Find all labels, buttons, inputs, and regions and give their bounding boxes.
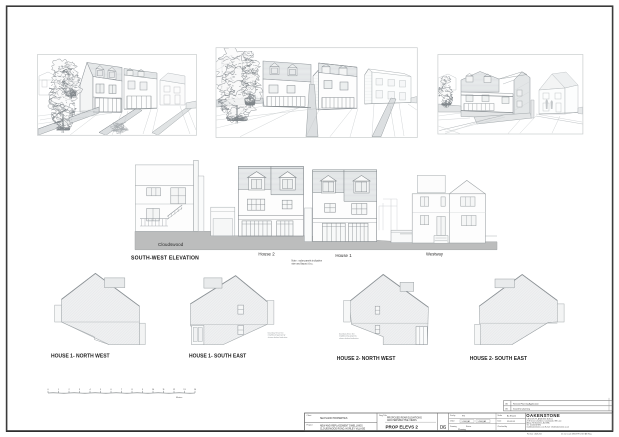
svg-text:Chkd: Chkd [450,421,454,423]
svg-text:HOUSE 2- SOUTH EAST: HOUSE 2- SOUTH EAST [470,356,527,362]
svg-text:Format : A1/1234: Format : A1/1234 [527,433,542,436]
svg-text:OAKENSTONE: OAKENSTONE [526,413,560,418]
svg-text:Project: Project [307,424,313,427]
svg-text:SEATLAND PROPERTIES: SEATLAND PROPERTIES [320,417,348,420]
svg-text:Checked by: Checked by [498,426,508,428]
svg-text:Date: Date [498,420,502,423]
svg-text:Revised Planning Application: Revised Planning Application [513,402,539,405]
svg-text:Cloudswood: Cloudswood [158,242,184,247]
svg-text:HOUSE 1- NORTH WEST: HOUSE 1- NORTH WEST [51,354,110,360]
svg-text:PROPOSED REAR ELEVATIONS: PROPOSED REAR ELEVATIONS [387,416,422,419]
svg-text:Do not scale 08/08 PEL 619 AB: Do not scale 08/08 PEL 619 AB Reg [561,433,591,436]
svg-text:Planning: Planning [458,429,466,431]
svg-text:Dwg Title: Dwg Title [379,414,387,417]
svg-text:CLOUDSWOOD ROAD, HORLEY VILLAG: CLOUDSWOOD ROAD, HORLEY VILLAGE [320,427,366,430]
svg-text:As Shown: As Shown [507,415,516,418]
svg-text:Westway: Westway [426,251,444,256]
svg-text:Metres: Metres [176,396,182,399]
svg-text:Drawing: Drawing [450,426,457,428]
svg-text:Issued for planning: Issued for planning [513,409,530,411]
svg-text:shown dashed indicative: shown dashed indicative [339,337,359,340]
svg-text:mail@oakenstone.co.uk E-mail: mail@oakenstone.co.uk E-mail : info@oake… [527,425,570,428]
svg-text:NEW AND REPLACEMENT DWELLINGS: NEW AND REPLACEMENT DWELLINGS [320,424,363,427]
svg-text:HOUSE 2- NORTH WEST: HOUSE 2- NORTH WEST [337,356,396,362]
svg-text:06: 06 [440,425,446,431]
svg-text:size and layout t.b.c.: size and layout t.b.c. [292,262,314,265]
svg-text:House 2: House 2 [258,252,275,257]
svg-text:AND PERSPECTIVE VIEWS: AND PERSPECTIVE VIEWS [387,419,417,422]
svg-text:PG: PG [462,416,465,418]
svg-text:Scale: Scale [498,415,503,417]
svg-text:Client: Client [307,414,312,417]
svg-text:1:100@A1: 1:100@A1 [462,420,471,423]
svg-text:Status: Status [466,425,471,428]
svg-text:SOUTH-WEST ELEVATION: SOUTH-WEST ELEVATION [131,256,199,262]
svg-text:PROP ELEVS 2: PROP ELEVS 2 [386,424,419,429]
svg-text:12.01.24: 12.01.24 [507,421,516,423]
svg-text:shown dashed indicative: shown dashed indicative [268,336,288,339]
svg-text:Drn by: Drn by [450,415,455,417]
svg-text:1:200@A3: 1:200@A3 [478,420,487,423]
svg-text:HOUSE 1- SOUTH EAST: HOUSE 1- SOUTH EAST [189,354,246,360]
svg-text:House 1: House 1 [335,253,352,258]
